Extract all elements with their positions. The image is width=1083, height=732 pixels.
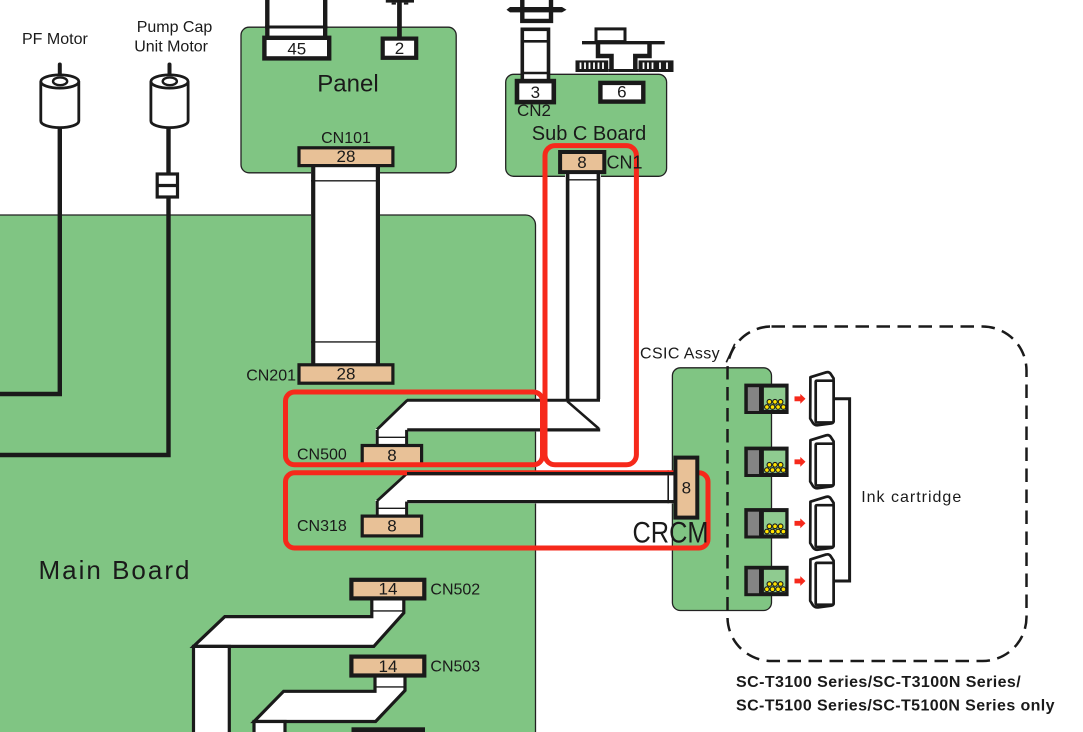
svg-text:CN503: CN503 [430,659,480,676]
svg-text:Sub C Board: Sub C Board [532,123,647,145]
svg-text:CN201: CN201 [246,368,296,385]
svg-text:SC-T3100 Series/SC-T3100N Seri: SC-T3100 Series/SC-T3100N Series/ [736,674,1021,691]
svg-text:8: 8 [682,479,691,498]
svg-text:CN2: CN2 [517,101,551,120]
svg-text:14: 14 [379,657,398,676]
svg-text:CRCM: CRCM [633,517,709,550]
svg-text:Panel: Panel [317,71,378,98]
svg-text:2: 2 [395,39,404,58]
svg-text:28: 28 [337,147,356,166]
svg-text:PF Motor: PF Motor [22,31,88,48]
svg-text:Ink cartridge: Ink cartridge [861,489,962,506]
svg-text:CN318: CN318 [297,518,347,535]
svg-text:14: 14 [379,580,398,599]
svg-text:45: 45 [287,40,306,59]
svg-text:Pump Cap: Pump Cap [137,19,213,36]
svg-text:SC-T5100 Series/SC-T5100N Seri: SC-T5100 Series/SC-T5100N Series only [736,698,1055,715]
svg-text:CN500: CN500 [297,447,347,464]
svg-text:8: 8 [387,446,396,465]
svg-text:CN101: CN101 [321,130,371,147]
svg-text:CN502: CN502 [430,582,480,599]
svg-text:8: 8 [387,517,396,536]
svg-text:28: 28 [337,364,356,383]
svg-text:3: 3 [531,83,540,102]
svg-text:Main Board: Main Board [39,555,192,585]
svg-text:CN1: CN1 [607,153,643,173]
svg-text:6: 6 [617,83,626,102]
svg-text:Unit Motor: Unit Motor [134,38,208,55]
svg-text:CSIC Assy: CSIC Assy [640,346,720,363]
svg-text:8: 8 [577,153,586,172]
